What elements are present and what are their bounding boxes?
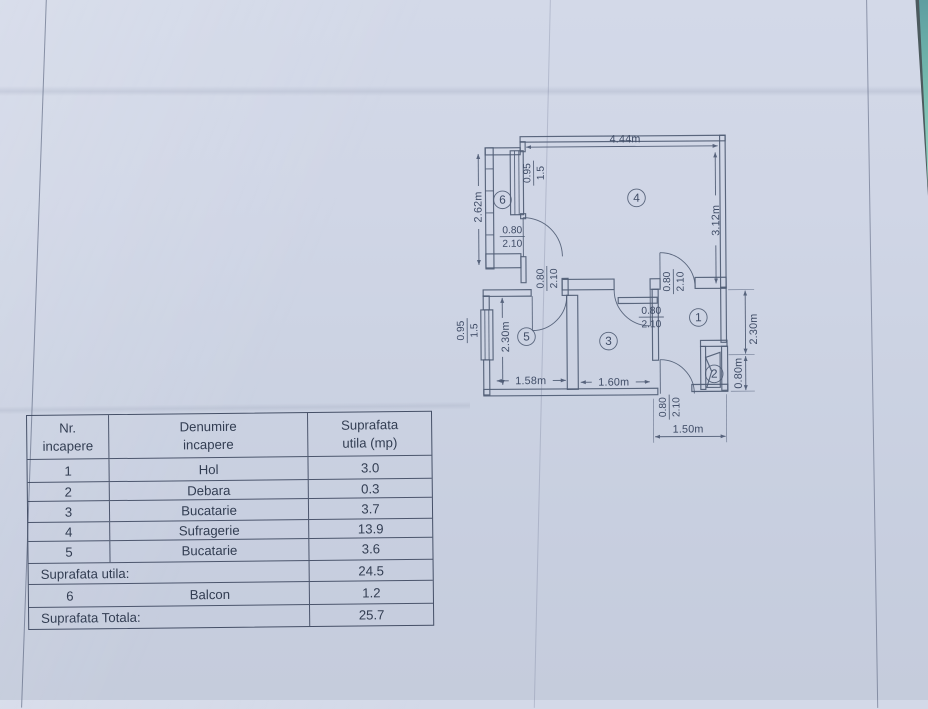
cell-area: 13.9	[309, 519, 432, 538]
cell-nr: 2	[28, 482, 110, 501]
room-circle-5: 5	[518, 328, 536, 346]
cell-nr: 5	[28, 541, 110, 563]
header-denumire-line1: Denumire	[179, 418, 236, 436]
room-number-5: 5	[523, 329, 530, 343]
door-width-text: 0.80	[502, 225, 522, 236]
cell-name: Balcon	[111, 582, 310, 606]
room-number-1: 1	[695, 310, 702, 324]
header-suprafata-line1: Suprafata	[341, 416, 398, 434]
cell-name: Hol	[109, 457, 308, 481]
cell-area: 3.0	[308, 456, 431, 479]
subtotal-label: Suprafata utila:	[29, 561, 310, 584]
dim-debara-height-label: 0.80m	[733, 358, 745, 389]
header-denumire: Denumire incapere	[109, 413, 308, 458]
door-height-text: 2.10	[671, 397, 682, 417]
dim-top-width-label: 4.44m	[610, 133, 641, 145]
subtotal-value: 24.5	[310, 560, 433, 581]
cell-name: Debara	[110, 480, 309, 500]
total-value: 25.7	[310, 604, 433, 626]
dim-bottom-right-width-label: 1.50m	[673, 423, 704, 435]
area-table: Nr. incapere Denumire incapere Suprafata…	[26, 411, 434, 630]
window-width-text: 0.95	[456, 320, 467, 340]
door-height-text: 2.10	[549, 268, 560, 288]
balcony-row: 6 Balcon 1.2	[29, 580, 433, 607]
door-width-text: 0.80	[658, 397, 669, 417]
cell-area: 3.7	[309, 498, 432, 519]
header-denumire-line2: incapere	[183, 435, 234, 453]
door-balcony	[523, 217, 562, 256]
header-nr-line1: Nr.	[59, 420, 76, 437]
window-height-text: 1.5	[536, 166, 547, 181]
cell-area: 1.2	[310, 581, 433, 604]
header-nr-line2: incapere	[42, 437, 93, 455]
door-room5	[532, 296, 567, 331]
cell-nr: 4	[28, 522, 110, 541]
cell-nr: 1	[27, 459, 109, 482]
subtotal-row: Suprafata utila: 24.5	[29, 559, 433, 584]
room-circle-6: 6	[494, 191, 512, 209]
dim-room5-height: 2.30m	[500, 298, 513, 385]
header-suprafata-line2: utila (mp)	[342, 434, 397, 452]
header-nr: Nr. incapere	[27, 415, 109, 459]
table-row: 1 Hol 3.0	[27, 455, 431, 482]
room-number-4: 4	[633, 191, 640, 205]
cell-area: 3.6	[309, 538, 432, 560]
door-height-text: 2.10	[641, 319, 661, 330]
header-suprafata: Suprafata utila (mp)	[308, 412, 431, 456]
dim-debara-height: 0.80m	[733, 356, 746, 390]
door-size-label-hall: 0.80 2.10	[662, 269, 687, 294]
window-width-text: 0.95	[522, 163, 533, 183]
dim-room5-height-label: 2.30m	[500, 321, 512, 352]
window-size-label-room5: 0.95 1.5	[456, 318, 481, 343]
door-size-label-room3: 0.80 2.10	[639, 306, 664, 331]
room-circle-3: 3	[600, 332, 618, 350]
dim-room3-width: 1.60m	[581, 376, 650, 388]
dim-room5-width-label: 1.58m	[515, 375, 546, 387]
cell-name: Bucatarie	[110, 539, 309, 562]
door-size-label-entry: 0.80 2.10	[658, 395, 683, 420]
room-number-2: 2	[711, 367, 718, 381]
table-row: 3 Bucatarie 3.7	[28, 497, 432, 522]
room-number-6: 6	[499, 193, 506, 207]
cell-nr: 3	[28, 501, 110, 522]
dim-balcony-height: 2.62m	[472, 154, 485, 265]
dim-hall-height-label: 2.30m	[748, 314, 760, 345]
door-width-text: 0.80	[641, 306, 661, 317]
cell-nr: 6	[29, 584, 111, 607]
total-row: Suprafata Totala: 25.7	[29, 603, 433, 629]
door-width-text: 0.80	[535, 268, 546, 288]
door-height-text: 2.10	[502, 239, 522, 250]
room-circle-4: 4	[628, 189, 646, 207]
room-circle-1: 1	[689, 309, 707, 327]
table-header-row: Nr. incapere Denumire incapere Suprafata…	[27, 412, 431, 459]
table-row: 5 Bucatarie 3.6	[28, 537, 432, 563]
window-size-label-balcony: 0.95 1.5	[522, 161, 547, 186]
window-room5	[481, 310, 493, 360]
cell-name: Bucatarie	[110, 499, 309, 521]
window-height-text: 1.5	[469, 323, 480, 338]
dim-room3-width-label: 1.60m	[598, 376, 629, 388]
dim-livingroom-height-label: 3.12m	[710, 205, 722, 236]
dim-room5-width: 1.58m	[497, 375, 566, 387]
door-size-label-balcony: 0.80 2.10	[500, 225, 525, 250]
door-size-label-room5: 0.80 2.10	[535, 266, 560, 291]
door-entry	[660, 359, 694, 393]
door-height-text: 2.10	[676, 271, 687, 291]
cell-name: Sufragerie	[110, 520, 309, 540]
total-label: Suprafata Totala:	[29, 605, 310, 629]
door-width-text: 0.80	[662, 271, 673, 291]
room-number-3: 3	[605, 334, 612, 348]
dim-balcony-height-label: 2.62m	[472, 191, 484, 222]
cell-area: 0.3	[309, 479, 432, 498]
